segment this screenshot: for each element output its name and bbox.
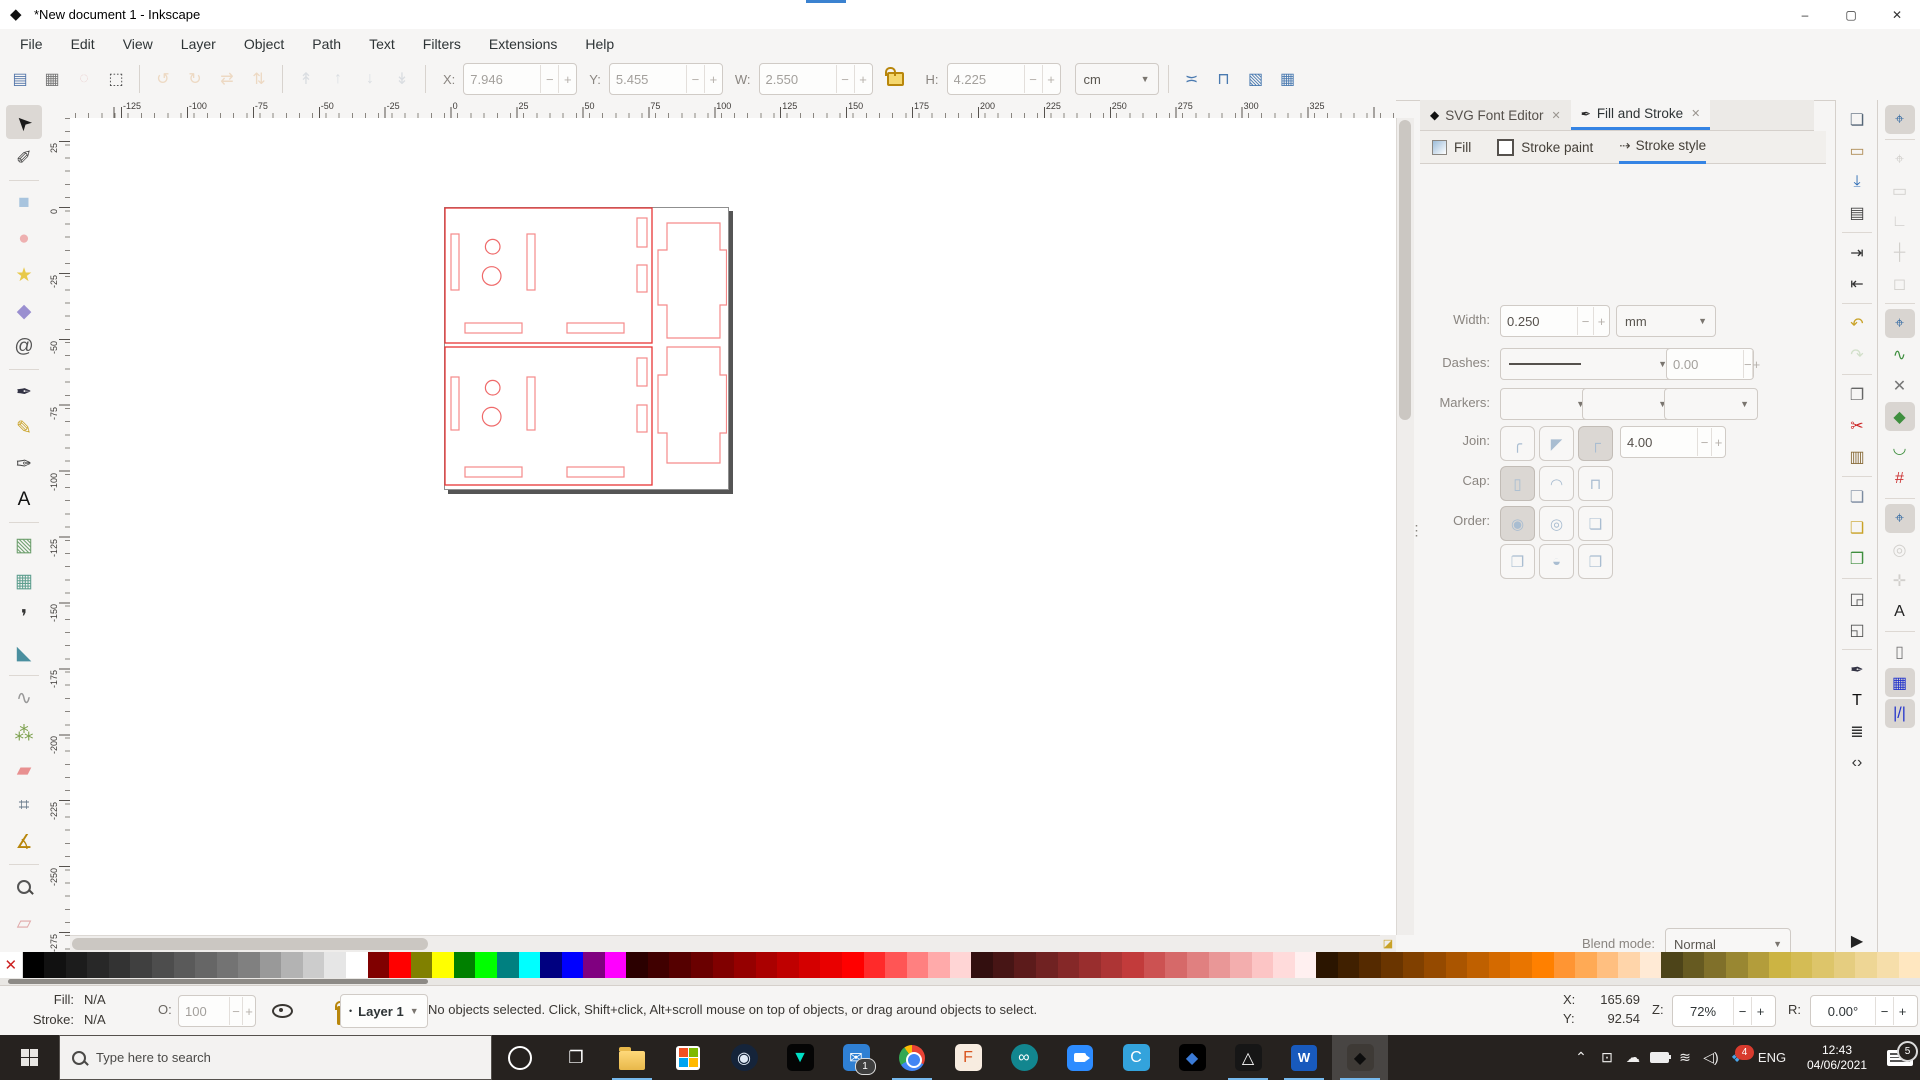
duplicate-icon[interactable]: ❏ [1842,482,1872,511]
palette-swatch[interactable] [950,952,972,978]
palette-swatch[interactable] [777,952,799,978]
join-label: Join: [1428,433,1490,448]
horizontal-ruler[interactable]: -125-100-75-50-2502550751001251501752002… [70,100,1396,119]
zoom-tool[interactable] [6,870,42,904]
taskbar-app-steam[interactable]: ◉ [716,1035,772,1080]
order-markers-fill-stroke-button[interactable]: ❏ [1578,506,1613,541]
w-minus-button[interactable]: − [836,65,854,93]
snap-nodes-icon[interactable]: ⌖ [1885,309,1915,338]
snap-cusp-nodes-icon[interactable]: ◆ [1885,402,1915,431]
palette-swatch[interactable] [109,952,131,978]
layer-visibility-icon[interactable] [272,1004,293,1018]
palette-swatch[interactable] [389,952,411,978]
marker-end-dropdown[interactable]: ▼ [1664,388,1758,420]
palette-swatch[interactable] [1252,952,1274,978]
palette-swatch[interactable] [756,952,778,978]
daz-studio-icon: ◆ [1179,1044,1206,1071]
opacity-status-minus[interactable]: − [229,997,242,1025]
box3d-tool[interactable]: ◆ [6,294,42,328]
zoom-drawing-icon[interactable]: ◱ [1842,615,1872,644]
fill-label: Fill: [22,992,74,1007]
move-patterns-toggle-icon[interactable]: ▦ [1274,65,1302,93]
h-ruler-tick: -125 [123,101,141,111]
palette-swatch[interactable] [66,952,88,978]
fill-stroke-dialog-icon[interactable]: ✒ [1842,655,1872,684]
h-field[interactable]: − + [947,63,1061,95]
fill-stroke-subtabs: FillStroke paint⇢Stroke style [1420,131,1826,164]
horizontal-scrollbar-thumb[interactable] [72,938,428,950]
palette-swatch[interactable] [130,952,152,978]
menu-layer[interactable]: Layer [169,32,228,56]
select-all-layers-icon[interactable]: ▦ [38,65,66,93]
taskbar-app-file-explorer[interactable] [604,1035,660,1080]
order-markers-stroke-fill-button[interactable]: ❒ [1578,544,1613,579]
y-field[interactable]: − + [609,63,723,95]
palette-swatch[interactable] [475,952,497,978]
join-round-button[interactable]: ╭ [1500,426,1535,461]
palette-swatch[interactable] [1489,952,1511,978]
x-minus-button[interactable]: − [540,65,558,93]
snap-path-intersections-icon[interactable]: ✕ [1885,371,1915,400]
palette-swatch[interactable] [583,952,605,978]
marker-mid-dropdown[interactable]: ▼ [1582,388,1676,420]
palette-swatch[interactable] [1058,952,1080,978]
paste-icon[interactable]: ▥ [1842,442,1872,471]
palette-swatch[interactable] [1575,952,1597,978]
windows-taskbar: Type here to search ❐ ◉▼✉1F∞C◆△W◆ ⌃ ⊡ ☁ … [0,1035,1920,1080]
cut-icon[interactable]: ✂ [1842,411,1872,440]
rotate-ccw-icon: ↺ [149,65,177,93]
selector-tool[interactable]: ➤ [6,105,42,139]
taskbar-app-mail[interactable]: ✉1 [828,1035,884,1080]
y-plus-button[interactable]: + [704,65,722,93]
palette-swatch[interactable] [260,952,282,978]
h-plus-button[interactable]: + [1042,65,1060,93]
palette-swatch[interactable] [1899,952,1920,978]
x-field[interactable]: − + [463,63,577,95]
dock-splitter-handle[interactable]: ⋮ [1413,505,1420,555]
palette-swatch[interactable] [1187,952,1209,978]
cortana-button[interactable] [492,1035,548,1080]
cap-square-button[interactable]: ⊓ [1578,466,1613,501]
palette-swatch[interactable] [432,952,454,978]
layer-selector-dropdown[interactable]: •Layer 1▼ [340,994,428,1028]
select-all-icon[interactable]: ▤ [6,65,34,93]
stroke-value[interactable]: N/A [84,1012,106,1027]
lock-ratio-icon[interactable] [887,72,904,86]
palette-swatch[interactable] [1769,952,1791,978]
star-tool[interactable]: ★ [6,258,42,292]
h-ruler-tick: 225 [1046,101,1061,111]
text-dialog-icon[interactable]: T [1842,686,1872,715]
undo-icon[interactable]: ↶ [1842,309,1872,338]
node-tool[interactable]: ✐ [6,141,42,175]
menu-file[interactable]: File [8,32,55,56]
v-ruler-tick: -200 [49,736,59,754]
vertical-scrollbar-thumb[interactable] [1399,120,1411,420]
x-plus-button[interactable]: + [558,65,576,93]
width-plus-button[interactable]: + [1593,307,1609,335]
w-plus-button[interactable]: + [854,65,872,93]
snap-smooth-nodes-icon[interactable]: ◡ [1885,433,1915,462]
menu-view[interactable]: View [111,32,165,56]
selection-box-icon[interactable]: ⬚ [102,65,130,93]
vertical-ruler[interactable]: 250-25-50-75-100-125-150-175-200-225-250… [48,118,71,952]
palette-scrollbar-thumb[interactable] [8,979,428,984]
menu-filters[interactable]: Filters [411,32,473,56]
palette-swatch[interactable] [842,952,864,978]
cap-label: Cap: [1428,473,1490,488]
snap-midpoints-icon[interactable]: # [1885,464,1915,493]
calligraphy-tool[interactable]: ✑ [6,447,42,481]
unlink-clone-icon[interactable]: ❒ [1842,544,1872,573]
palette-swatch[interactable] [1122,952,1144,978]
language-indicator[interactable]: ENG [1750,1050,1794,1065]
order-fill-stroke-markers-button[interactable]: ◉ [1500,506,1535,541]
palette-swatch[interactable] [217,952,239,978]
taskbar-app-predator[interactable]: ▼ [772,1035,828,1080]
palette-swatch[interactable] [1230,952,1252,978]
maximize-button[interactable]: ▢ [1828,0,1874,29]
fill-icon [1432,140,1447,155]
cap-butt-button[interactable]: ▯ [1500,466,1535,501]
menu-help[interactable]: Help [573,32,626,56]
taskbar-app-word[interactable]: W [1276,1035,1332,1080]
join-miter-button[interactable]: ┌ [1578,426,1613,461]
bucket-tool[interactable]: ◣ [6,636,42,670]
palette-swatch[interactable] [1079,952,1101,978]
h-ruler-tick: 25 [519,101,529,111]
canvas[interactable] [70,118,1396,935]
palette-swatch[interactable] [1704,952,1726,978]
palette-swatch[interactable] [864,952,886,978]
new-document-icon[interactable]: ❏ [1842,105,1872,134]
copy-icon[interactable]: ❐ [1842,380,1872,409]
palette-swatch[interactable] [820,952,842,978]
palette-swatch[interactable] [1209,952,1231,978]
tweak-tool[interactable]: ∿ [6,681,42,715]
taskbar-app-inkscape[interactable]: ◆ [1332,1035,1388,1080]
tray-screen-record-icon[interactable]: ⊡ [1594,1049,1620,1066]
palette-swatch[interactable] [648,952,670,978]
zoom-plus-button[interactable]: + [1751,997,1769,1025]
palette-swatch[interactable] [1554,952,1576,978]
palette-swatch[interactable] [1381,952,1403,978]
opacity-status-field[interactable]: −+ [178,995,256,1027]
h-ruler-tick: 300 [1244,101,1259,111]
width-label: Width: [1428,312,1490,327]
snap-grid-icon[interactable]: ▦ [1885,668,1915,697]
menu-extensions[interactable]: Extensions [477,32,569,56]
close-tab-icon[interactable]: ✕ [1552,109,1561,122]
taskbar-app-daz-studio[interactable]: ◆ [1164,1035,1220,1080]
print-icon[interactable]: ▤ [1842,198,1872,227]
rotation-minus-button[interactable]: − [1875,997,1893,1025]
dropper-tool[interactable]: ❜ [6,600,42,634]
order-stroke-markers-fill-button[interactable]: ◒ [1539,544,1574,579]
layers-dialog-icon[interactable]: ≣ [1842,717,1872,746]
v-ruler-tick: -275 [49,934,59,952]
v-ruler-tick: -150 [49,604,59,622]
palette-swatch[interactable] [1295,952,1317,978]
unit-dropdown[interactable]: cm▼ [1075,63,1159,95]
dash-offset-minus-button[interactable]: − [1743,350,1752,378]
dash-pattern-dropdown[interactable]: ▼ [1500,348,1676,380]
miter-plus-button[interactable]: + [1711,428,1725,456]
palette-swatch[interactable] [1640,952,1662,978]
move-gradients-toggle-icon[interactable]: ▧ [1242,65,1270,93]
width-unit-dropdown[interactable]: mm▼ [1616,305,1716,337]
palette-swatch[interactable] [562,952,584,978]
dock-tab-fill-and-stroke[interactable]: ✒ Fill and Stroke✕ [1571,100,1711,130]
palette-swatch[interactable] [195,952,217,978]
order-fill-markers-stroke-button[interactable]: ❐ [1500,544,1535,579]
palette-scrollbar[interactable] [0,978,1920,985]
spray-tool[interactable]: ⁂ [6,717,42,751]
palette-swatch[interactable] [734,952,756,978]
clone-icon[interactable]: ❑ [1842,513,1872,542]
system-tray: ⌃ ⊡ ☁ ≋ ◁) ❖4 ENG 12:4304/06/2021 5 [1568,1035,1920,1080]
wifi-icon[interactable]: ≋ [1672,1049,1698,1066]
gradient-tool[interactable]: ▧ [6,528,42,562]
dropbox-icon[interactable]: ❖4 [1724,1049,1750,1066]
w-field[interactable]: − + [759,63,873,95]
fill-stroke-pen-icon: ✒ [1581,107,1591,121]
stroke-width-field[interactable]: −+ [1500,305,1610,337]
eraser-tool[interactable]: ▰ [6,753,42,787]
subtab-stroke-paint[interactable]: Stroke paint [1497,132,1593,163]
ellipse-tool[interactable]: ● [6,222,42,256]
arduino-icon: ∞ [1011,1044,1038,1071]
palette-swatch[interactable] [368,952,390,978]
pen-tool[interactable]: ✒ [6,375,42,409]
palette-swatch[interactable] [1510,952,1532,978]
taskbar-app-arduino[interactable]: ∞ [996,1035,1052,1080]
palette-swatch[interactable] [519,952,541,978]
palette-swatch[interactable] [971,952,993,978]
close-tab-icon[interactable]: ✕ [1691,107,1700,120]
palette-swatch[interactable] [540,952,562,978]
taskbar-app-chrome[interactable] [884,1035,940,1080]
palette-swatch[interactable] [23,952,45,978]
palette-swatch[interactable] [799,952,821,978]
palette-swatch[interactable] [1661,952,1683,978]
palette-swatch[interactable] [1036,952,1058,978]
width-minus-button[interactable]: − [1577,307,1593,335]
palette-swatch[interactable] [324,952,346,978]
horizontal-scrollbar[interactable] [70,935,1380,953]
palette-swatch[interactable] [1273,952,1295,978]
fill-value[interactable]: N/A [84,992,106,1007]
opacity-status-plus[interactable]: + [242,997,255,1025]
task-view-button[interactable]: ❐ [548,1035,604,1080]
h-ruler-tick: -50 [321,101,334,111]
minimize-button[interactable]: – [1782,0,1828,29]
snap-bbox-icon: ⌖ [1885,145,1915,174]
subtab-stroke-style[interactable]: ⇢Stroke style [1619,130,1706,164]
palette-swatch[interactable] [1316,952,1338,978]
notification-center-button[interactable]: 5 [1880,1050,1920,1066]
stroke-paint-icon [1497,139,1514,156]
join-bevel-button[interactable]: ◤ [1539,426,1574,461]
palette-swatch[interactable] [346,952,368,978]
dashes-label: Dashes: [1428,355,1490,370]
palette-swatch[interactable] [454,952,476,978]
overflow-arrow-icon[interactable]: ▶ [1842,926,1872,955]
taskbar-app-zoom[interactable] [1052,1035,1108,1080]
menu-object[interactable]: Object [232,32,296,56]
cura-icon: C [1123,1044,1150,1071]
color-managed-view-icon[interactable]: ◪ [1380,935,1396,952]
palette-swatch[interactable] [928,952,950,978]
palette-swatch[interactable] [1338,952,1360,978]
snap-text-baseline-icon[interactable]: A [1885,597,1915,626]
scale-corners-toggle-icon[interactable]: ⊓ [1210,65,1238,93]
zoom-minus-button[interactable]: − [1733,997,1751,1025]
taskbar-app-cura[interactable]: C [1108,1035,1164,1080]
palette-swatch[interactable] [1748,952,1770,978]
microsoft-store-icon [676,1046,700,1070]
palette-swatch[interactable] [907,952,929,978]
subtab-fill[interactable]: Fill [1432,132,1471,163]
compass-tool[interactable]: ∡ [6,825,42,859]
dialog-dock: ◆ SVG Font Editor✕ ✒ Fill and Stroke✕ Fi… [1420,100,1814,952]
text-tool[interactable]: A [6,483,42,517]
miter-minus-button[interactable]: − [1697,428,1711,456]
taskbar-app-prusaslicer[interactable]: △ [1220,1035,1276,1080]
palette-swatch[interactable] [885,952,907,978]
spiral-tool[interactable]: @ [6,330,42,364]
palette-swatch[interactable] [1446,952,1468,978]
title-bar: ◆ *New document 1 - Inkscape – ▢ ✕ [0,0,1920,30]
zoom-selection-icon[interactable]: ◲ [1842,584,1872,613]
taskbar-app-microsoft-store[interactable] [660,1035,716,1080]
measure-tool[interactable]: ▱ [6,906,42,940]
palette-swatch[interactable] [1855,952,1877,978]
open-document-icon[interactable]: ▭ [1842,136,1872,165]
palette-swatch[interactable] [669,952,691,978]
palette-swatch[interactable] [281,952,303,978]
battery-icon[interactable] [1646,1052,1672,1063]
palette-swatch[interactable] [1467,952,1489,978]
palette-swatch[interactable] [152,952,174,978]
palette-swatch[interactable] [87,952,109,978]
y-minus-button[interactable]: − [686,65,704,93]
onedrive-icon[interactable]: ☁ [1620,1049,1646,1066]
palette-swatch[interactable] [1424,952,1446,978]
palette-swatch[interactable] [626,952,648,978]
miter-limit-field[interactable]: −+ [1620,426,1726,458]
palette-swatch[interactable] [1144,952,1166,978]
v-ruler-tick: -25 [49,275,59,288]
connector-tool[interactable]: ⌗ [6,789,42,823]
lower-icon: ↓ [356,65,384,93]
taskbar-app-fusion-360[interactable]: F [940,1035,996,1080]
palette-swatch[interactable] [1618,952,1640,978]
palette-swatch[interactable] [174,952,196,978]
dash-offset-plus-button[interactable]: + [1752,350,1761,378]
h-ruler-tick: -100 [189,101,207,111]
start-button[interactable] [0,1035,59,1080]
palette-swatch[interactable] [713,952,735,978]
dash-offset-field[interactable]: −+ [1666,348,1754,380]
marker-start-dropdown[interactable]: ▼ [1500,388,1594,420]
snap-paths-icon[interactable]: ∿ [1885,340,1915,369]
palette-swatch[interactable] [238,952,260,978]
palette-swatch[interactable] [993,952,1015,978]
h-ruler-tick: 275 [1178,101,1193,111]
xml-editor-icon[interactable]: ‹› [1842,748,1872,777]
order-stroke-fill-markers-button[interactable]: ◎ [1539,506,1574,541]
rotation-plus-button[interactable]: + [1893,997,1911,1025]
palette-swatch[interactable] [1359,952,1381,978]
stroke-style-icon: ⇢ [1619,138,1628,154]
tray-chevron-icon[interactable]: ⌃ [1568,1049,1594,1066]
laser-cut-drawing[interactable] [444,207,727,488]
cap-round-button[interactable]: ◠ [1539,466,1574,501]
palette-swatch[interactable] [1877,952,1899,978]
snap-page-border-icon[interactable]: ▯ [1885,637,1915,666]
snap-others-icon[interactable]: ⌖ [1885,504,1915,533]
snap-bbox-centers-icon: ◻ [1885,269,1915,298]
palette-swatch[interactable] [303,952,325,978]
palette-swatch[interactable] [691,952,713,978]
palette-swatch[interactable] [1165,952,1187,978]
palette-swatch[interactable] [1683,952,1705,978]
h-minus-button[interactable]: − [1024,65,1042,93]
zoom-field[interactable]: −+ [1672,995,1776,1027]
rectangle-tool[interactable]: ■ [6,186,42,220]
palette-swatch[interactable] [1834,952,1856,978]
scale-stroke-toggle-icon[interactable]: ≍ [1178,65,1206,93]
pencil-tool[interactable]: ✎ [6,411,42,445]
palette-swatch[interactable] [1014,952,1036,978]
mesh-tool[interactable]: ▦ [6,564,42,598]
taskbar-clock[interactable]: 12:4304/06/2021 [1794,1043,1880,1073]
save-document-icon[interactable]: ⤓ [1842,167,1872,196]
palette-swatch[interactable] [605,952,627,978]
menu-edit[interactable]: Edit [59,32,107,56]
inkscape-logo-icon: ◆ [10,7,26,23]
palette-swatch[interactable] [1101,952,1123,978]
palette-swatch[interactable] [1791,952,1813,978]
volume-icon[interactable]: ◁) [1698,1049,1724,1066]
palette-swatch[interactable] [1726,952,1748,978]
close-button[interactable]: ✕ [1874,0,1920,29]
export-icon[interactable]: ⇤ [1842,269,1872,298]
palette-swatch[interactable] [1403,952,1425,978]
palette-swatch[interactable] [1532,952,1554,978]
zoom-app-icon [1067,1045,1093,1071]
fusion-360-icon: F [955,1044,982,1071]
rotation-field[interactable]: −+ [1810,995,1918,1027]
dock-tab-svg-font-editor[interactable]: ◆ SVG Font Editor✕ [1420,100,1571,130]
palette-swatch[interactable] [497,952,519,978]
snap-enable-icon[interactable]: ⌖ [1885,105,1915,134]
import-icon[interactable]: ⇥ [1842,238,1872,267]
menu-path[interactable]: Path [300,32,353,56]
palette-swatch[interactable] [1597,952,1619,978]
palette-swatch[interactable] [44,952,66,978]
top-edge-artifact [806,0,846,3]
palette-swatch[interactable] [411,952,433,978]
menu-text[interactable]: Text [357,32,407,56]
palette-swatch[interactable] [1812,952,1834,978]
taskbar-search-input[interactable]: Type here to search [59,1035,492,1080]
snap-guides-icon[interactable]: |/| [1885,699,1915,728]
snap-bbox-edges-icon: ▭ [1885,176,1915,205]
palette-swatch-none[interactable]: ✕ [0,952,23,978]
